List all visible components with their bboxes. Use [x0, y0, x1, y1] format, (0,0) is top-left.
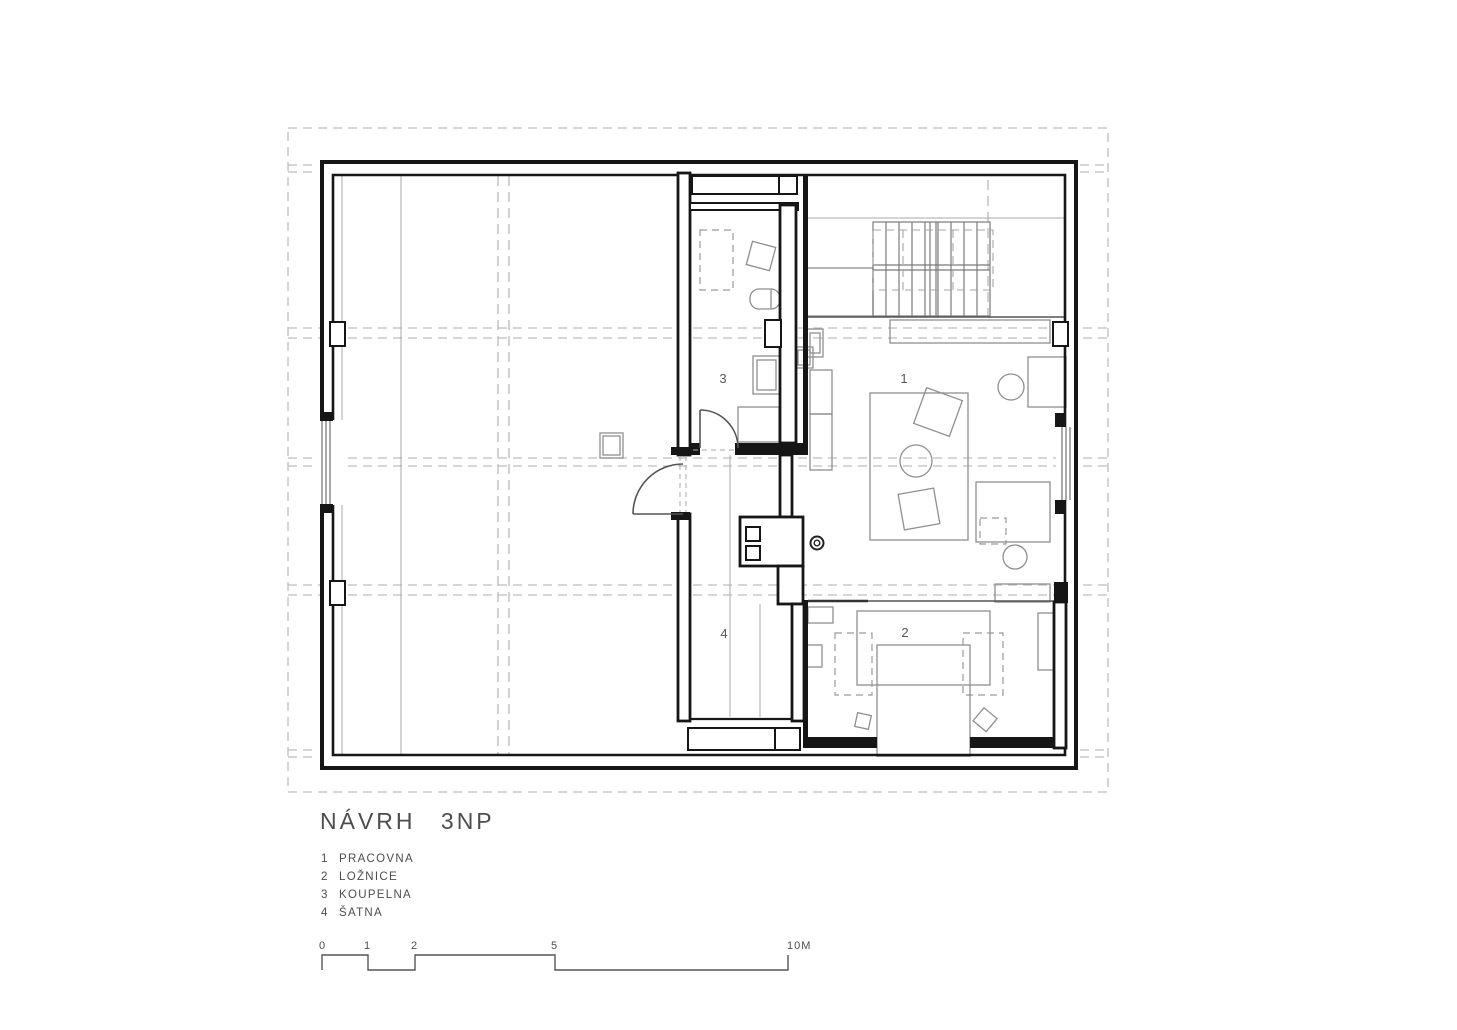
legend-num-2: 2: [321, 871, 329, 883]
chimney-flue: [746, 527, 760, 541]
staircase: [806, 222, 1065, 343]
scale-tick-2: 2: [411, 940, 418, 952]
wall-desk-chair: [998, 374, 1024, 400]
wall-pier: [330, 581, 345, 605]
room-label-loznice: 2: [901, 625, 908, 640]
wall-desk: [1028, 357, 1066, 407]
hall-left-wall: [803, 176, 808, 455]
shelf-upper: [810, 370, 832, 414]
cabinet-a: [808, 607, 833, 623]
wall-pier: [1053, 322, 1068, 346]
legend-num-1: 1: [321, 853, 329, 865]
shower-dashed: [700, 230, 733, 290]
bedroom-left-wall: [803, 600, 808, 748]
scale-tick-5: 5: [551, 940, 558, 952]
bed: [877, 645, 970, 757]
chair-dashed: [980, 518, 1006, 544]
wall-pier: [1054, 582, 1068, 603]
stool-right: [973, 708, 997, 732]
scale-tick-1: 1: [364, 940, 371, 952]
furniture-office: [600, 329, 1066, 569]
drawing-title: NÁVRH 3NP: [320, 808, 495, 834]
stair-headroom-dashed: [873, 230, 993, 290]
side-table: [900, 445, 932, 477]
legend-num-4: 4: [321, 907, 329, 919]
corridor-wall-lower: [678, 514, 690, 721]
floorplan-page: { "drawing": { "title": "NÁVRH 3NP", "le…: [0, 0, 1457, 1030]
door-swing-bathroom: [700, 410, 738, 448]
wardrobe-closet: [688, 728, 800, 750]
legend: 1 PRACOVNA 2 LOŽNICE 3 KOUPELNA 4 ŠATNA: [321, 853, 414, 919]
stool: [746, 241, 775, 270]
roof-overhang-outline: [288, 128, 1108, 792]
bench: [738, 407, 779, 442]
toilet: [750, 289, 780, 309]
built-in-closet: [692, 176, 797, 194]
window-band: [995, 584, 1050, 602]
window-jamb: [1055, 413, 1066, 427]
room-label-pracovna: 1: [900, 371, 907, 386]
desk: [976, 482, 1050, 542]
scale-tick-10m: 10M: [787, 940, 811, 952]
window-jamb: [320, 412, 333, 421]
door-swing-hall: [633, 464, 683, 514]
stool-left: [855, 713, 872, 730]
nightstand-left-dashed: [835, 633, 872, 695]
floor-drain: [811, 537, 824, 550]
corridor-right-wall: [780, 455, 792, 517]
room-label-satna: 4: [720, 626, 727, 641]
desk-chair: [1003, 545, 1027, 569]
legend-num-3: 3: [321, 889, 329, 901]
roof-plane-lines: [288, 165, 1108, 757]
bedroom-bottom-wall: [970, 737, 1066, 748]
legend-label-3: KOUPELNA: [339, 889, 412, 901]
shelf-lower: [810, 414, 832, 470]
nightstand-right-dashed: [963, 633, 1003, 695]
bedroom-bottom-wall: [808, 737, 877, 748]
title-block: NÁVRH 3NP 1 PRACOVNA 2 LOŽNICE 3 KOUPELN…: [319, 808, 811, 970]
wall-niche: [765, 320, 781, 347]
stair-landing: [806, 268, 873, 316]
bedroom-right-wall: [1054, 602, 1066, 748]
legend-label-4: ŠATNA: [339, 906, 383, 919]
bathroom-right-wall: [780, 205, 796, 443]
window-jamb: [320, 504, 333, 513]
furniture-bedroom: [806, 584, 1056, 757]
exterior-walls: [317, 162, 1076, 768]
wall-pier: [330, 322, 345, 346]
legend-label-2: LOŽNICE: [339, 870, 398, 883]
wardrobe-right-wall: [792, 604, 804, 721]
floorplan-drawing: 1 2 3 4 NÁVRH 3NP 1 PRACOVNA 2 LOŽNICE 3…: [0, 0, 1457, 1030]
corridor-wall-upper: [678, 173, 690, 455]
chair-1: [914, 388, 963, 437]
chimney-flue: [746, 546, 760, 560]
cabinet-b: [806, 645, 822, 667]
legend-label-1: PRACOVNA: [339, 853, 414, 865]
scale-bar-shape: [322, 955, 788, 970]
room-label-koupelna: 3: [719, 371, 726, 386]
gallery-edge-band: [890, 320, 1050, 343]
window-jamb: [1055, 500, 1066, 514]
chair-2: [898, 488, 940, 530]
scale-bar: 0 1 2 5 10M: [319, 940, 811, 970]
scale-tick-0: 0: [319, 940, 326, 952]
